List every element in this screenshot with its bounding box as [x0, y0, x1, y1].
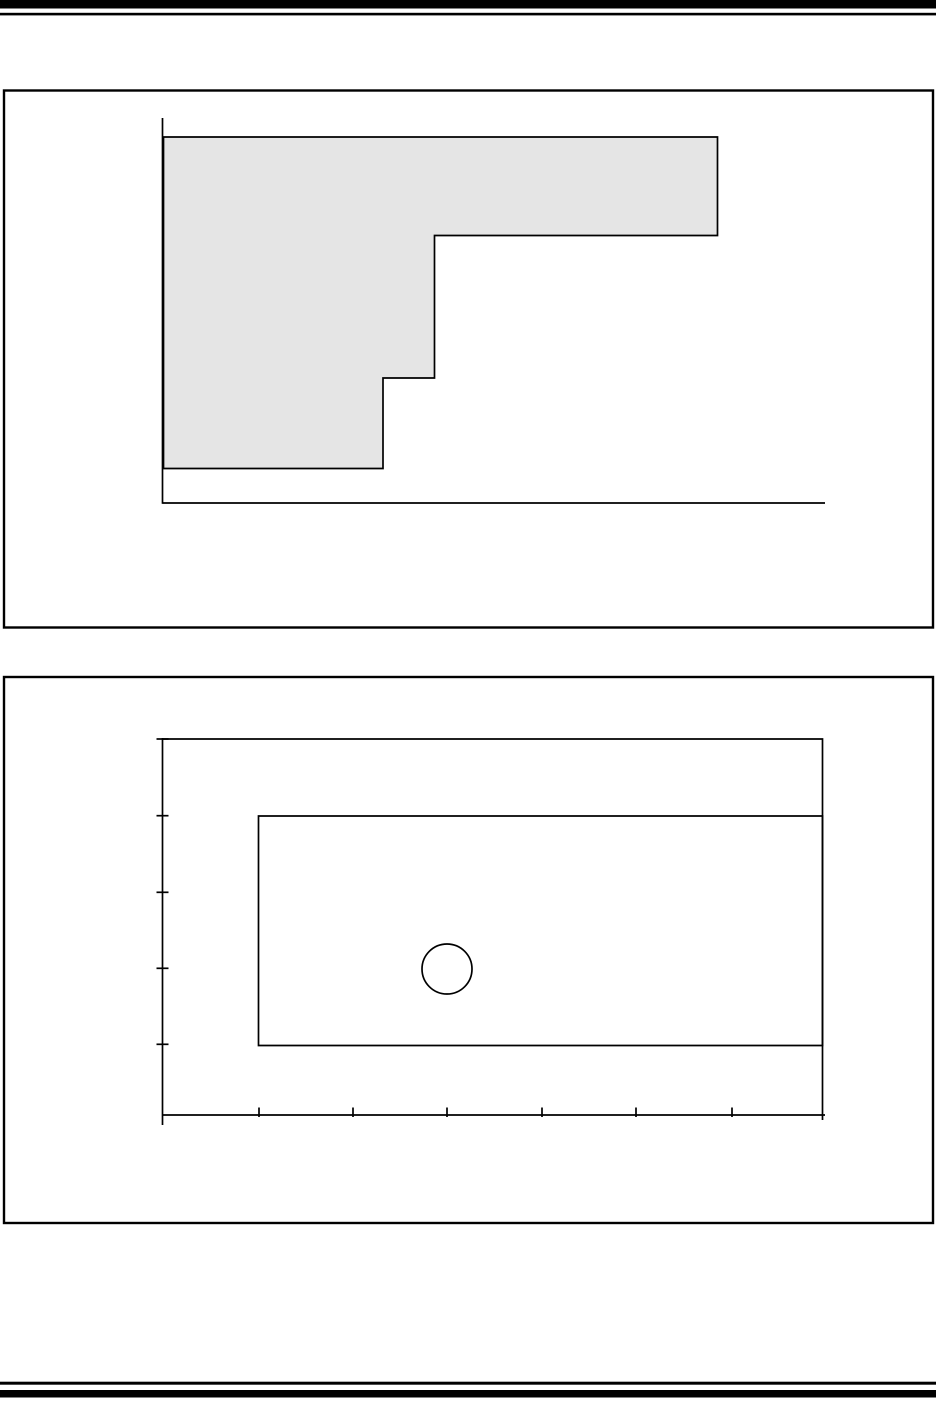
- footer-thick-rule: [0, 1390, 936, 1398]
- header-thick-rule: [0, 0, 936, 9]
- footer-thin-rule: [0, 1382, 936, 1385]
- header-thin-rule: [0, 13, 936, 16]
- page-canvas: [0, 0, 936, 1412]
- figure-2-frame: [4, 677, 933, 1223]
- document-page: [0, 0, 936, 1412]
